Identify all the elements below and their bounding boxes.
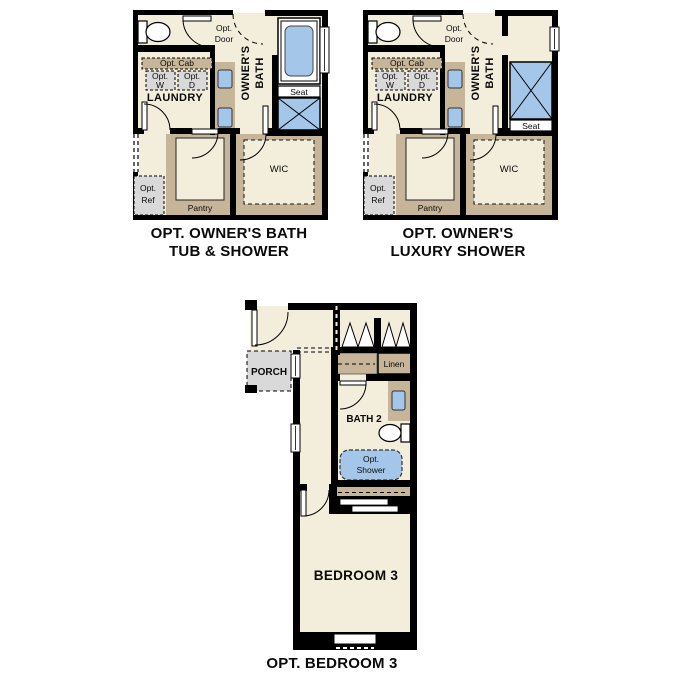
luxury-shower-icon	[510, 62, 552, 119]
sink-icon	[448, 108, 462, 127]
sink-icon	[392, 391, 405, 410]
sink-icon	[218, 108, 232, 127]
floorplan-svg: Opt. Cab Opt. W Opt. D LAUNDRY Opt. Door…	[0, 0, 687, 687]
plan2-pantry-interior	[406, 138, 454, 200]
plan-opt-bedroom3: PORCH Linen BATH 2 Opt. Shower BEDROOM 3…	[245, 300, 417, 672]
opt-ref-label2: Ref	[371, 195, 385, 205]
opt-ref-label: Opt.	[140, 183, 156, 193]
floorplan-sheet: Opt. Cab Opt. W Opt. D LAUNDRY Opt. Door…	[0, 0, 687, 687]
wic-label: WIC	[270, 164, 289, 175]
pantry-label: Pantry	[418, 203, 443, 213]
plan1-wall-gap	[132, 134, 139, 172]
opt-cab-label: Opt. Cab	[390, 58, 424, 68]
bypass-door	[352, 506, 398, 512]
plan2-caption-line2: LUXURY SHOWER	[390, 243, 525, 260]
opt-d-label2: D	[189, 80, 195, 90]
linen-label: Linen	[384, 359, 405, 369]
bath2-label: BATH 2	[346, 414, 382, 425]
bypass-door	[340, 499, 388, 505]
opt-door-label2: Door	[445, 34, 464, 44]
shower-icon	[278, 98, 320, 130]
owners-bath-label: OWNER'S	[470, 46, 482, 101]
sink-icon	[218, 70, 232, 88]
wic-label: WIC	[500, 164, 519, 175]
opt-door-label2: Door	[215, 34, 234, 44]
plan2-wall-gap	[362, 134, 369, 172]
plan3-caption: OPT. BEDROOM 3	[266, 655, 397, 672]
opt-w-label2: W	[386, 80, 394, 90]
owners-bath-label2: BATH	[484, 57, 496, 88]
laundry-label: LAUNDRY	[377, 92, 433, 104]
pantry-label: Pantry	[188, 203, 213, 213]
sink-icon	[448, 70, 462, 88]
opt-door-label: Opt.	[216, 23, 232, 33]
plan1-caption-line1: OPT. OWNER'S BATH	[151, 225, 308, 242]
plan2-caption-line1: OPT. OWNER'S	[403, 225, 514, 242]
toilet-icon	[138, 21, 170, 43]
opt-ref-label: Opt.	[370, 183, 386, 193]
plan1-pantry-interior	[176, 138, 224, 200]
opt-cab-label: Opt. Cab	[160, 58, 194, 68]
tub-icon	[278, 18, 320, 84]
opt-w-label2: W	[156, 80, 164, 90]
laundry-label: LAUNDRY	[147, 92, 203, 104]
bedroom3-label: BEDROOM 3	[314, 568, 399, 583]
plan-owners-luxury-shower: Opt. Cab Opt. W Opt. D LAUNDRY Opt. Door…	[362, 10, 559, 260]
opt-door-label: Opt.	[446, 23, 462, 33]
opt-d-label2: D	[419, 80, 425, 90]
plan-owners-bath-tub-shower: Opt. Cab Opt. W Opt. D LAUNDRY Opt. Door…	[132, 10, 329, 260]
seat-label: Seat	[522, 121, 540, 131]
window-icon	[334, 634, 376, 644]
seat-label: Seat	[290, 87, 308, 97]
opt-shower-label2: Shower	[357, 465, 386, 475]
toilet-icon	[368, 21, 400, 43]
owners-bath-label: OWNER'S	[240, 46, 252, 101]
owners-bath-label2: BATH	[254, 57, 266, 88]
opt-shower-label: Opt.	[363, 454, 379, 464]
porch-label: PORCH	[251, 367, 287, 378]
opt-ref-label2: Ref	[141, 195, 155, 205]
closet-shelf	[336, 353, 377, 374]
plan1-caption-line2: TUB & SHOWER	[169, 243, 289, 260]
toilet-icon	[379, 424, 410, 442]
